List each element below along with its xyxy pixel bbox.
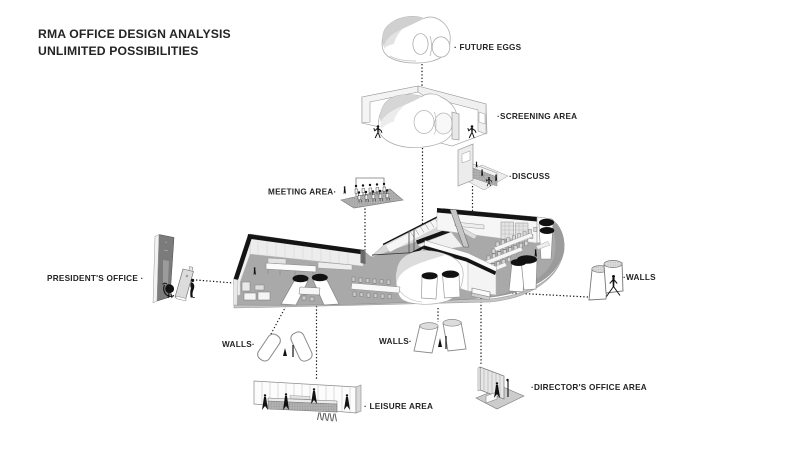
svg-text:RMA OFFICE DESIGN ANALYSIS: RMA OFFICE DESIGN ANALYSIS	[38, 27, 231, 41]
svg-text:· LEISURE AREA: · LEISURE AREA	[364, 402, 433, 411]
svg-text:PRESIDENT'S OFFICE ·: PRESIDENT'S OFFICE ·	[47, 274, 144, 283]
svg-text:·DIRECTOR'S OFFICE AREA: ·DIRECTOR'S OFFICE AREA	[531, 383, 647, 392]
svg-text:WALLS·: WALLS·	[222, 340, 255, 349]
svg-text:·WALLS: ·WALLS	[623, 273, 656, 282]
svg-text:· FUTURE EGGS: · FUTURE EGGS	[454, 43, 522, 52]
svg-text:·SCREENING AREA: ·SCREENING AREA	[497, 112, 577, 121]
svg-text:UNLIMITED POSSIBILITIES: UNLIMITED POSSIBILITIES	[38, 44, 199, 58]
svg-text:MEETING AREA·: MEETING AREA·	[268, 188, 336, 197]
svg-text:WALLS·: WALLS·	[379, 337, 412, 346]
svg-text:·DISCUSS: ·DISCUSS	[509, 172, 550, 181]
